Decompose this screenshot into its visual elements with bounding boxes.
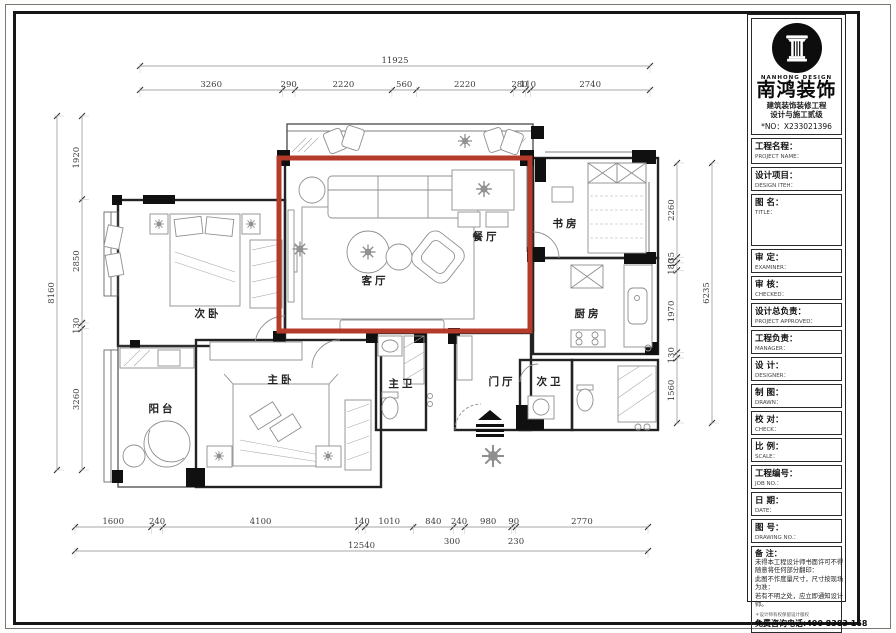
field-label-cn: 制 图： (755, 386, 838, 398)
hotline-phone: 免费咨询电话:400 8383 168 (755, 618, 838, 631)
dim-right-overall: 6235 (702, 160, 719, 426)
room-label-master: 主卧 (268, 373, 295, 386)
svg-text:11925: 11925 (381, 56, 408, 66)
room-label-living: 客厅 (361, 274, 389, 287)
svg-text:3260: 3260 (72, 388, 82, 410)
field-check: 校 对： CHECK： (751, 411, 842, 435)
svg-text:130: 130 (72, 318, 82, 334)
field-label-en: DESIGN ITEH： (755, 181, 838, 189)
svg-text:2740: 2740 (579, 80, 601, 90)
dim-right-segments: 226013518019701301560 (667, 160, 684, 426)
dim-left-overall: 8160 (47, 113, 64, 473)
field-label-en: EXAMINER： (755, 263, 838, 271)
room-label-bedroom2: 次卧 (195, 307, 222, 320)
field-label-cn: 比 例： (755, 440, 838, 452)
room-label-dining: 餐厅 (472, 230, 500, 243)
note-line: 若有不明之处，应立即通知设计 (755, 593, 838, 602)
field-label-cn: 图 名： (755, 196, 838, 208)
field-label-en: CHECK： (755, 425, 838, 433)
field-designer: 设 计： DESIGNER： (751, 357, 842, 381)
field-manager: 工程负责： MANAGER： (751, 330, 842, 354)
field-drawing-title: 图 名： TITLE： (751, 194, 842, 246)
note-line: 随意将任何部分翻印： (755, 567, 838, 576)
field-design-item: 设计项目： DESIGN ITEH： (751, 167, 842, 191)
room-label-master-bath: 主卫 (389, 377, 416, 390)
field-examiner: 审 定： EXAMINER： (751, 249, 842, 273)
notes-box: 备 注： 未得本工程设计师书面许可不得 随意将任何部分翻印： 此图不作度量尺寸，… (751, 546, 842, 633)
svg-text:110: 110 (520, 80, 536, 90)
field-project-approved: 设计总负责： PROJECT APPROVED： (751, 303, 842, 327)
field-label-cn: 审 核： (755, 278, 838, 290)
field-label-cn: 工程名程： (755, 140, 838, 152)
brand-name-cn: 南鸿装饰 (755, 81, 838, 101)
svg-text:1010: 1010 (378, 517, 400, 527)
field-label-en: MANAGER： (755, 344, 838, 352)
field-label-en: CHECKED： (755, 290, 838, 298)
field-label-cn: 校 对： (755, 413, 838, 425)
note-line: 为准： (755, 584, 838, 593)
field-label-en: DESIGNER： (755, 371, 838, 379)
svg-text:980: 980 (480, 517, 496, 527)
field-project-name: 工程名程： PROJECT NAME： (751, 138, 842, 164)
field-label-cn: 工程负责： (755, 332, 838, 344)
svg-text:1970: 1970 (667, 301, 677, 323)
dim-left-segments: 192028501303260 (72, 113, 89, 473)
field-job-no: 工程编号： JOB NO.： (751, 465, 842, 489)
field-checked: 审 核： CHECKED： (751, 276, 842, 300)
svg-text:130: 130 (667, 347, 677, 363)
field-label-cn: 审 定： (755, 251, 838, 263)
svg-text:2220: 2220 (333, 80, 355, 90)
notes-title: 备 注： (755, 548, 838, 559)
field-label-en: SCALE： (755, 452, 838, 460)
field-scale: 比 例： SCALE： (751, 438, 842, 462)
field-label-en: JOB NO.： (755, 479, 838, 487)
field-label-cn: 设计项目： (755, 169, 838, 181)
svg-text:2260: 2260 (667, 199, 677, 221)
svg-text:90: 90 (508, 517, 519, 527)
dim-top-overall: 11925 (137, 56, 653, 73)
cert-line-2: 设计与施工贰级 (755, 110, 838, 119)
room-label-bath2: 次卫 (537, 375, 564, 388)
field-label-en: TITLE： (755, 208, 838, 216)
field-label-en: DRAWN： (755, 398, 838, 406)
svg-text:1560: 1560 (667, 380, 677, 402)
svg-text:6235: 6235 (702, 282, 712, 304)
note-line: 师。 (755, 601, 838, 610)
dim-bottom-overall: 12540 (72, 541, 651, 558)
field-drawn: 制 图： DRAWN： (751, 384, 842, 408)
svg-text:290: 290 (281, 80, 297, 90)
svg-text:4100: 4100 (250, 517, 272, 527)
drawing-sheet: 客厅 餐厅 书房 次卧 厨房 阳台 主卧 主卫 门厅 次卫 1192532602… (0, 0, 896, 633)
floor-plan: 客厅 餐厅 书房 次卧 厨房 阳台 主卧 主卫 门厅 次卫 1192532602… (0, 0, 740, 633)
field-drawing-no: 图 号： DRAWING NO.： (751, 519, 842, 543)
svg-text:3260: 3260 (200, 80, 222, 90)
field-label-cn: 图 号： (755, 521, 838, 533)
svg-text:8160: 8160 (47, 282, 57, 304)
svg-text:240: 240 (451, 517, 467, 527)
dim-offset-label: 300 (444, 537, 460, 547)
svg-text:1600: 1600 (102, 517, 124, 527)
dim-top-segments: 3260290222056022202801102740 (137, 80, 653, 97)
svg-text:12540: 12540 (348, 541, 375, 551)
field-label-en: PROJECT NAME： (755, 152, 838, 160)
field-label-cn: 工程编号： (755, 467, 838, 479)
cert-line-1: 建筑装饰装修工程 (755, 101, 838, 110)
svg-text:2770: 2770 (571, 517, 593, 527)
field-label-cn: 日 期： (755, 494, 838, 506)
license-number: *NO：X233021396 (755, 121, 838, 132)
note-line: 未得本工程设计师书面许可不得 (755, 559, 838, 568)
svg-text:840: 840 (425, 517, 441, 527)
field-label-cn: 设 计： (755, 359, 838, 371)
field-date: 日 期： DATE： (751, 492, 842, 516)
dim-bottom-segments: 160024041001401010840240980902770 (72, 517, 651, 534)
company-logo-box: NANHONG DESIGN 南鸿装饰 建筑装饰装修工程 设计与施工贰级 *NO… (751, 18, 842, 135)
room-label-balcony: 阳台 (149, 402, 176, 415)
dim-offset-label: 230 (508, 537, 524, 547)
svg-text:560: 560 (396, 80, 412, 90)
title-block: NANHONG DESIGN 南鸿装饰 建筑装饰装修工程 设计与施工贰级 *NO… (747, 14, 846, 602)
field-label-en: DRAWING NO.： (755, 533, 838, 541)
svg-text:140: 140 (354, 517, 370, 527)
room-label-kitchen: 厨房 (575, 307, 602, 320)
room-label-study: 书房 (553, 217, 580, 230)
svg-text:2850: 2850 (72, 250, 82, 272)
field-label-cn: 设计总负责： (755, 305, 838, 317)
svg-text:240: 240 (149, 517, 165, 527)
svg-text:180: 180 (667, 259, 677, 275)
field-label-en: PROJECT APPROVED： (755, 317, 838, 325)
svg-text:1920: 1920 (72, 147, 82, 169)
note-line: 此图不作度量尺寸，尺寸按现场 (755, 576, 838, 585)
field-label-en: DATE： (755, 506, 838, 514)
room-label-foyer: 门厅 (489, 375, 516, 388)
svg-text:2220: 2220 (454, 80, 476, 90)
nanhong-logo-icon (772, 23, 822, 73)
